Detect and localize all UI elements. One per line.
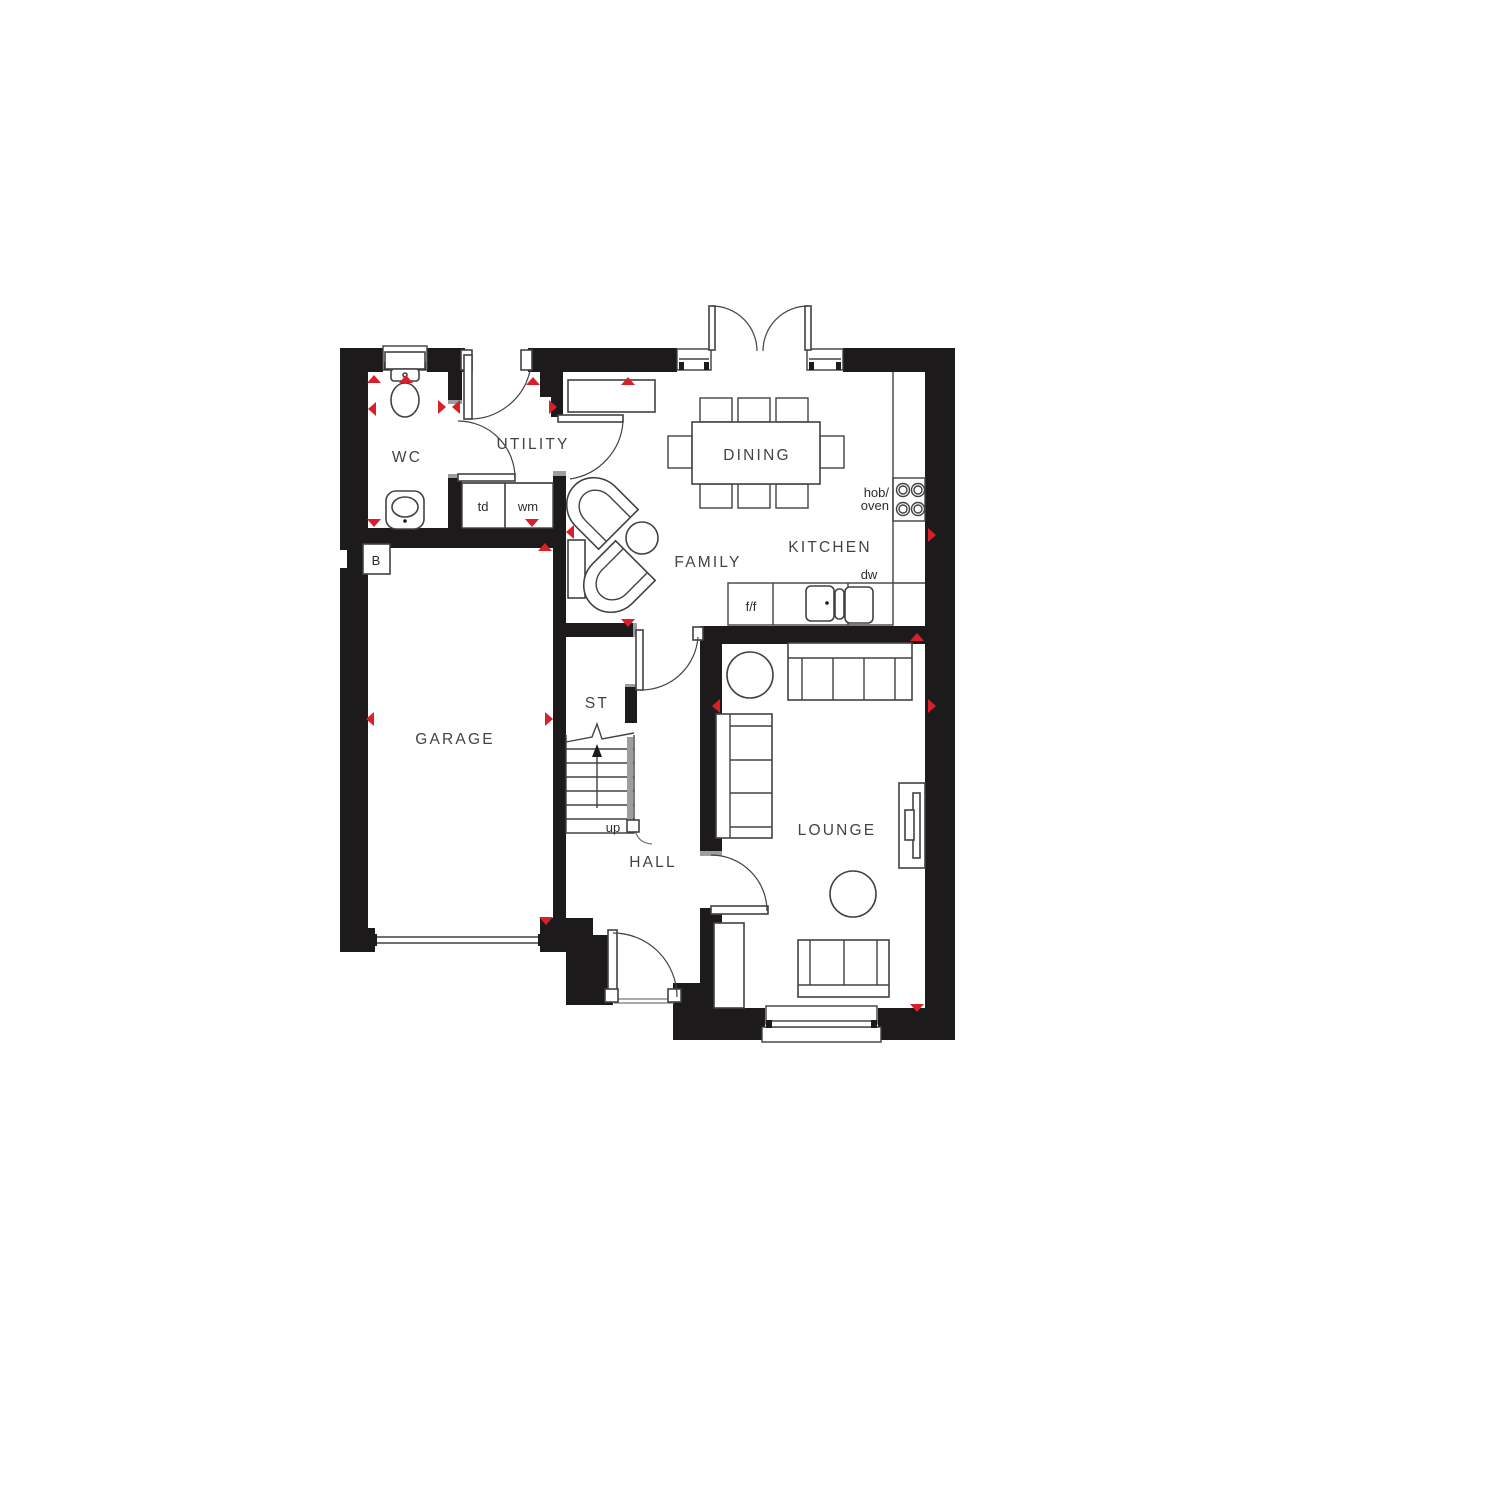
- boiler-wall-gap: [339, 550, 347, 568]
- label-lounge: LOUNGE: [798, 822, 877, 839]
- dining-chair: [700, 398, 732, 422]
- toilet-bowl: [391, 383, 419, 417]
- hob-burner-2b: [914, 486, 922, 494]
- label-stairs-up: up: [606, 820, 620, 835]
- hall-door-leaf: [636, 630, 643, 690]
- dining-chair: [738, 398, 770, 422]
- lounge-round-table-2: [830, 871, 876, 917]
- sink-bar: [835, 589, 844, 619]
- hob-icon: [897, 484, 925, 516]
- sofa-top-body: [788, 643, 912, 700]
- sink-board: [845, 587, 873, 623]
- front-door-hinge-right: [668, 989, 681, 1002]
- sofa-bottom-icon: [798, 940, 889, 997]
- french-door-right-leaf: [805, 306, 811, 350]
- bay-window-outer-sill: [762, 1027, 881, 1042]
- garage-door: [372, 934, 543, 946]
- lounge-cabinet: [714, 923, 744, 1008]
- stairs-break-line: [566, 724, 634, 742]
- hob-burner-1b: [899, 486, 907, 494]
- family-worktop: [568, 380, 655, 412]
- floor-plan-page: WC UTILITY DINING KITCHEN FAMILY GARAGE …: [0, 0, 1500, 1500]
- label-family: FAMILY: [674, 554, 741, 571]
- front-door-hinge-left: [605, 989, 618, 1002]
- utility-appliances: [462, 483, 553, 528]
- tv-unit-icon: [899, 783, 925, 868]
- label-hob-oven-2: oven: [861, 498, 889, 513]
- sink-bowl: [806, 586, 834, 621]
- sofa-left-body: [716, 714, 772, 838]
- tv-bracket: [905, 810, 914, 840]
- floor-plan-svg: WC UTILITY DINING KITCHEN FAMILY GARAGE …: [0, 0, 1500, 1500]
- french-door-left-arc: [712, 306, 757, 351]
- label-boiler: B: [372, 553, 381, 568]
- stairs-handrail: [627, 737, 633, 821]
- garage-door-ends: [372, 934, 543, 946]
- family-unit: [568, 540, 585, 598]
- basin-bowl: [392, 497, 418, 517]
- label-hall: HALL: [629, 854, 677, 871]
- basin-tap: [403, 519, 407, 523]
- french-door-right-arc: [763, 306, 808, 351]
- stairs-up-arrow-head: [592, 744, 602, 757]
- dining-chair: [776, 398, 808, 422]
- bay-window-glass: [769, 1021, 874, 1027]
- lounge-door-arc: [711, 855, 767, 911]
- bay-window: [762, 1006, 881, 1042]
- utility-door-jamb-right: [521, 350, 532, 370]
- utility-door-arc: [468, 371, 530, 419]
- label-store: ST: [585, 695, 609, 712]
- lounge-round-table-1: [727, 652, 773, 698]
- stairs-newel-post: [627, 820, 639, 832]
- sofa-top-icon: [788, 643, 912, 700]
- family-door-arc: [570, 421, 623, 479]
- label-dishwasher: dw: [861, 567, 878, 582]
- hob-burner-4b: [914, 505, 922, 513]
- label-wc: WC: [392, 449, 422, 466]
- dining-chair: [776, 484, 808, 508]
- stairs-treads: [566, 749, 634, 819]
- basin-icon: [386, 491, 424, 529]
- label-utility: UTILITY: [496, 436, 569, 453]
- label-dining: DINING: [723, 447, 790, 464]
- toilet-icon: [385, 352, 425, 417]
- family-door-leaf: [558, 415, 623, 422]
- label-fridge-freezer: f/f: [746, 599, 757, 614]
- label-washing-machine: wm: [517, 499, 538, 514]
- label-kitchen: KITCHEN: [788, 539, 871, 556]
- hob-burner-3b: [899, 505, 907, 513]
- front-door-arc: [613, 933, 677, 997]
- dining-chair: [820, 436, 844, 468]
- dining-chair: [700, 484, 732, 508]
- family-side-table: [626, 522, 658, 554]
- french-door-left-leaf: [709, 306, 715, 350]
- kitchen-fittings: [728, 372, 925, 625]
- dining-chair: [668, 436, 692, 468]
- toilet-cistern: [385, 352, 425, 369]
- wc-door-leaf: [458, 474, 515, 481]
- sofa-left-icon: [716, 714, 772, 838]
- lounge-door-leaf: [711, 906, 768, 914]
- label-tumble-dryer: td: [478, 499, 489, 514]
- front-door-leaf: [608, 930, 617, 996]
- label-garage: GARAGE: [415, 731, 495, 748]
- hall-door-arc: [642, 637, 698, 690]
- sink-tap: [825, 601, 829, 605]
- sink-icon: [806, 586, 873, 623]
- utility-door-leaf: [464, 355, 472, 419]
- dining-chair: [738, 484, 770, 508]
